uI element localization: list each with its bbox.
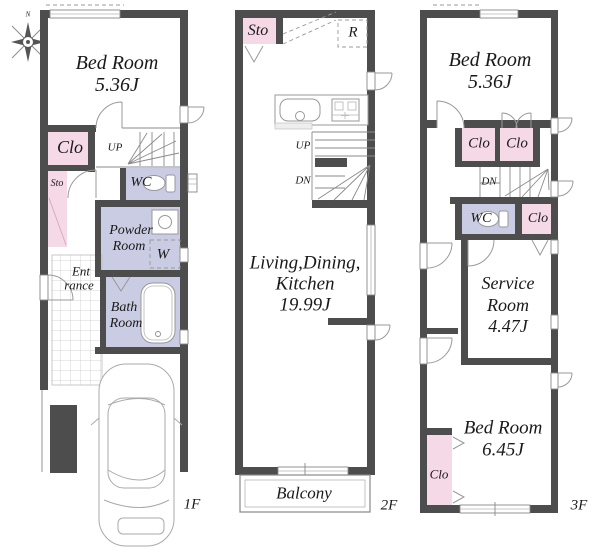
stairs-down-label-3f: DN xyxy=(481,177,496,188)
kitchen-counter xyxy=(275,95,368,129)
stove-icon xyxy=(332,99,359,121)
stairs-up-label-1f: UP xyxy=(108,143,123,154)
washbasin-icon xyxy=(152,210,178,234)
room-label-powder-1: Powder xyxy=(109,224,153,238)
room-label-bedroom-3f-n: Bed Room xyxy=(449,50,532,70)
washer-label: W xyxy=(157,248,170,263)
balcony-label: Balcony xyxy=(276,485,332,502)
stairs-up-label-2f: UP xyxy=(296,141,311,152)
room-label-wc-1f: WC xyxy=(131,176,152,190)
room-label-closet-b: Clo xyxy=(506,137,528,152)
room-label-closet-1f: Clo xyxy=(57,138,83,156)
area-label-ldk: 19.99J xyxy=(279,296,330,315)
fridge-label: R xyxy=(348,26,357,41)
car-icon xyxy=(91,364,182,546)
room-label-closet-a: Clo xyxy=(468,137,490,152)
area-label-bedroom-3f-s: 6.45J xyxy=(482,441,524,460)
bathtub-icon xyxy=(141,283,175,343)
area-label-bedroom-1f: 5.36J xyxy=(95,75,139,95)
room-label-bedroom-1f: Bed Room xyxy=(76,53,159,73)
floorplan-canvas: N Bed Room 5.36J Clo UP Sto WC Powder Ro… xyxy=(0,0,600,560)
room-label-ldk-2: Kitchen xyxy=(275,275,334,294)
room-label-powder-2: Room xyxy=(113,240,146,254)
room-label-bath-1: Bath xyxy=(111,301,137,315)
kitchen-sink-icon xyxy=(280,99,320,121)
room-label-closet-d: Clo xyxy=(430,468,449,481)
room-label-wc-3f: WC xyxy=(471,212,492,226)
room-label-entrance-2: rance xyxy=(64,279,94,292)
stairs-down-label-2f: DN xyxy=(295,176,310,187)
floor-label-3f: 3F xyxy=(571,499,588,514)
area-label-service: 4.47J xyxy=(488,317,528,335)
area-label-bedroom-3f-n: 5.36J xyxy=(468,72,512,92)
floor-label-2f: 2F xyxy=(381,499,398,514)
compass-rose-icon xyxy=(11,22,45,62)
room-label-closet-c: Clo xyxy=(528,212,548,226)
room-label-service-2: Room xyxy=(487,296,529,314)
room-label-ldk-1: Living,Dining, xyxy=(250,254,361,273)
room-label-service-1: Service xyxy=(482,274,535,292)
compass-north-label: N xyxy=(26,12,31,19)
room-label-storage-2f: Sto xyxy=(248,23,268,39)
room-label-storage-1f: Sto xyxy=(51,179,64,189)
floor-label-1f: 1F xyxy=(184,498,201,513)
room-label-bath-2: Room xyxy=(110,317,143,331)
room-label-entrance-1: Ent xyxy=(72,265,90,278)
room-label-bedroom-3f-s: Bed Room xyxy=(464,419,543,438)
